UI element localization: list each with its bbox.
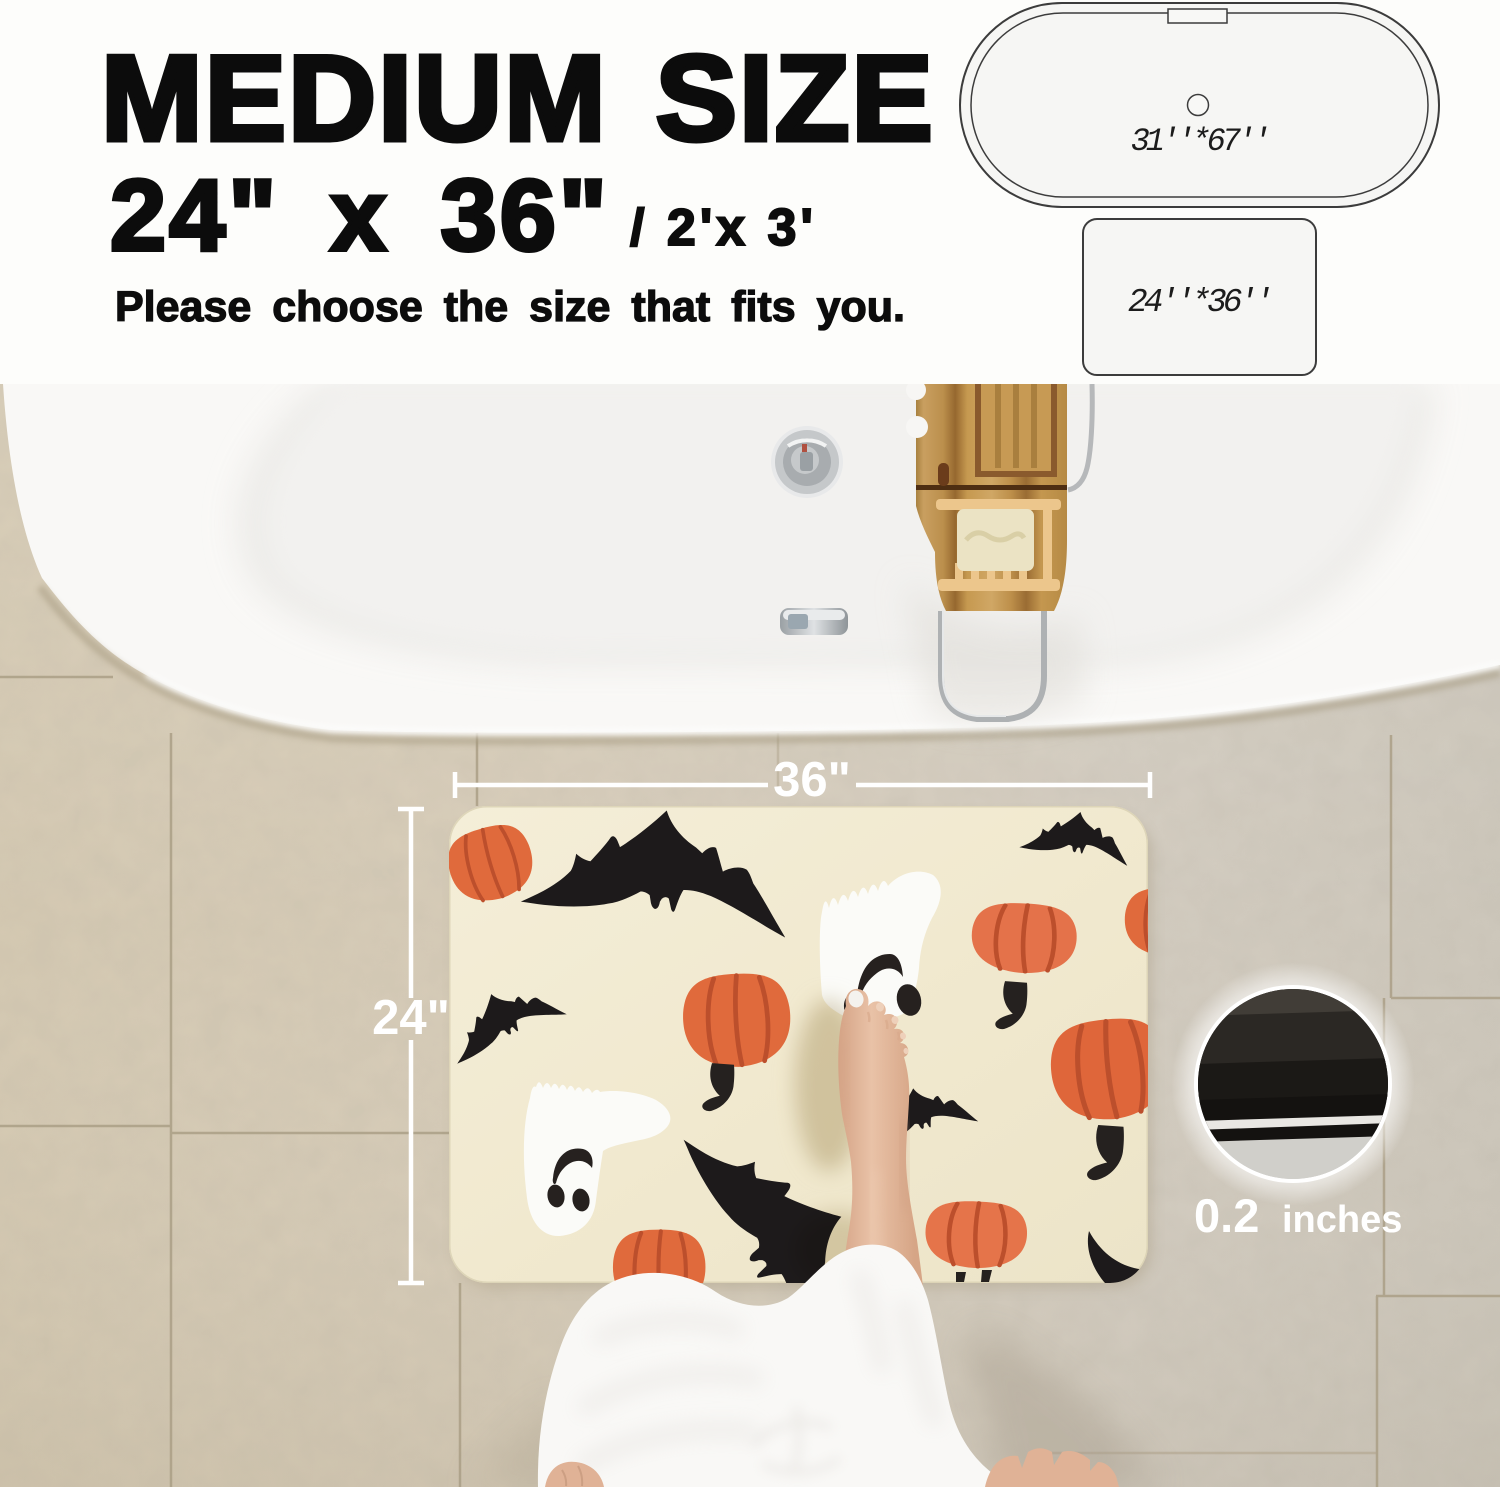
svg-text:0.2: 0.2 (1194, 1189, 1259, 1242)
svg-text:24": 24" (372, 991, 450, 1045)
svg-text:31''*67'': 31''*67'' (1131, 123, 1268, 160)
svg-text:24''*36'': 24''*36'' (1128, 284, 1270, 321)
svg-text:inches: inches (1282, 1199, 1402, 1241)
svg-text:36": 36" (773, 753, 851, 807)
